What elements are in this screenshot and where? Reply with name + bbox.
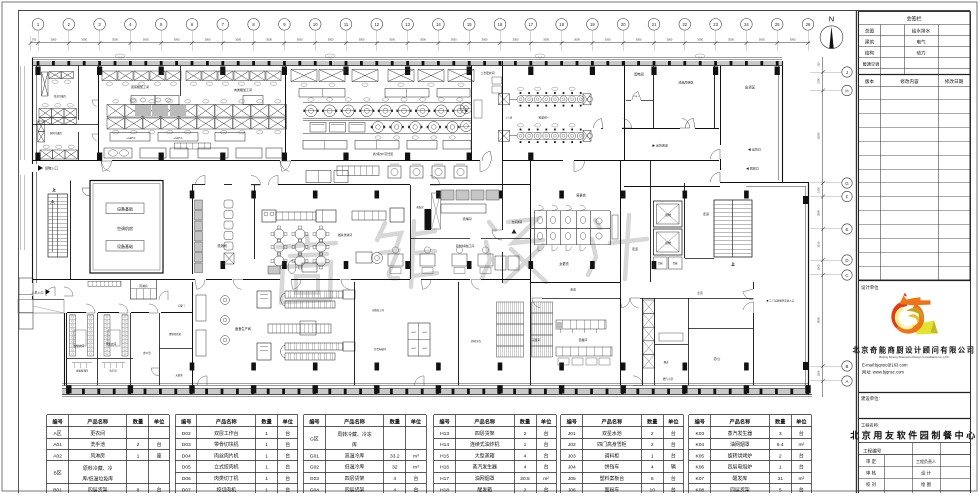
svg-text:700: 700 bbox=[32, 38, 37, 42]
svg-text:m³: m³ bbox=[413, 453, 419, 459]
svg-text:台: 台 bbox=[544, 430, 549, 437]
svg-text:更衣间: 更衣间 bbox=[90, 430, 105, 437]
svg-text:面食熟制加工间: 面食熟制加工间 bbox=[456, 244, 475, 248]
svg-text:审 定: 审 定 bbox=[866, 458, 877, 465]
svg-text:肉类切丁机: 肉类切丁机 bbox=[214, 475, 239, 482]
svg-text:8: 8 bbox=[137, 487, 140, 493]
svg-text:餐具洗消间: 餐具洗消间 bbox=[338, 233, 352, 237]
svg-text:3000: 3000 bbox=[359, 38, 365, 42]
svg-text:双星水池: 双星水池 bbox=[602, 430, 622, 437]
svg-text:26: 26 bbox=[806, 22, 811, 27]
svg-text:A02: A02 bbox=[53, 453, 62, 459]
svg-text:3000: 3000 bbox=[205, 38, 211, 42]
svg-text:10: 10 bbox=[313, 22, 318, 27]
svg-text:K03: K03 bbox=[695, 431, 704, 437]
svg-text:台: 台 bbox=[285, 464, 290, 471]
svg-text:3000: 3000 bbox=[451, 38, 457, 42]
svg-text:数量: 数量 bbox=[775, 417, 786, 425]
svg-text:24: 24 bbox=[744, 22, 749, 27]
svg-text:凉菜间: 凉菜间 bbox=[532, 338, 540, 342]
svg-text:面食生产间: 面食生产间 bbox=[235, 326, 251, 331]
svg-text:m²: m² bbox=[798, 442, 804, 448]
svg-text:3000: 3000 bbox=[174, 38, 180, 42]
svg-text:6: 6 bbox=[651, 476, 654, 482]
svg-text:2: 2 bbox=[779, 453, 782, 459]
svg-text:m³: m³ bbox=[413, 465, 419, 471]
svg-text:成品周转区: 成品周转区 bbox=[678, 80, 693, 85]
svg-text:走道: 走道 bbox=[697, 291, 703, 295]
svg-text:3000: 3000 bbox=[81, 38, 87, 42]
svg-text:北京奇能商厨设计顾问有限公司: 北京奇能商厨设计顾问有限公司 bbox=[852, 346, 975, 355]
svg-text:3000: 3000 bbox=[482, 38, 488, 42]
svg-text:单位: 单位 bbox=[541, 417, 552, 425]
svg-text:配电间: 配电间 bbox=[634, 72, 644, 77]
svg-text:空调机房: 空调机房 bbox=[117, 225, 133, 231]
svg-text:D07: D07 bbox=[182, 487, 191, 493]
svg-text:16: 16 bbox=[498, 22, 503, 27]
svg-text:G区: G区 bbox=[310, 436, 319, 442]
svg-text:Beijing Kineng Shangchu Design: Beijing Kineng Shangchu Design Consultan… bbox=[879, 355, 949, 359]
svg-text:台: 台 bbox=[671, 475, 676, 482]
svg-text:单位: 单位 bbox=[154, 417, 165, 425]
svg-text:产品名称: 产品名称 bbox=[474, 417, 496, 425]
svg-text:燃气小室: 燃气小室 bbox=[663, 377, 674, 381]
svg-text:台货电梯间: 台货电梯间 bbox=[374, 347, 387, 351]
svg-text:修改日期: 修改日期 bbox=[945, 78, 964, 85]
svg-text:3000: 3000 bbox=[728, 38, 734, 42]
svg-text:库/低温垃圾库: 库/低温垃圾库 bbox=[82, 475, 113, 482]
svg-text:单位: 单位 bbox=[411, 417, 422, 425]
svg-text:编号: 编号 bbox=[309, 417, 319, 425]
svg-text:原料冷藏、冷: 原料冷藏、冷 bbox=[83, 465, 112, 472]
svg-text:四门高身雪柜: 四门高身雪柜 bbox=[597, 441, 626, 448]
svg-text:校 对: 校 对 bbox=[866, 481, 877, 488]
svg-text:22: 22 bbox=[682, 22, 687, 27]
svg-text:低温冷库: 低温冷库 bbox=[345, 464, 365, 471]
svg-text:电气: 电气 bbox=[916, 39, 926, 45]
svg-text:会签栏: 会签栏 bbox=[906, 16, 921, 23]
svg-text:B01: B01 bbox=[53, 487, 62, 493]
svg-text:3000: 3000 bbox=[51, 38, 57, 42]
svg-text:H: H bbox=[845, 88, 848, 93]
svg-text:B区: B区 bbox=[54, 470, 62, 476]
svg-text:H17: H17 bbox=[440, 476, 449, 482]
svg-text:20.5: 20.5 bbox=[520, 476, 530, 482]
svg-text:K04: K04 bbox=[695, 442, 704, 448]
svg-text:E-mail:bjqnsc@163.com: E-mail:bjqnsc@163.com bbox=[862, 363, 908, 368]
svg-text:25: 25 bbox=[775, 22, 780, 27]
svg-text:数量: 数量 bbox=[390, 417, 401, 425]
svg-text:台: 台 bbox=[157, 441, 162, 448]
svg-text:北京用友软件园制餐中心: 北京用友软件园制餐中心 bbox=[850, 430, 978, 441]
svg-text:D: D bbox=[845, 258, 848, 263]
svg-text:烟道: 烟道 bbox=[664, 360, 669, 364]
svg-text:洗消间: 洗消间 bbox=[217, 243, 227, 248]
svg-text:旋转烘烤炉: 旋转烘烤炉 bbox=[728, 452, 753, 459]
svg-text:2: 2 bbox=[651, 442, 654, 448]
svg-text:21: 21 bbox=[652, 22, 657, 27]
svg-text:煮/炖/炒/烹饪区: 煮/炖/炒/烹饪区 bbox=[373, 151, 394, 156]
svg-text:32: 32 bbox=[392, 465, 398, 471]
svg-text:男更衣: 男更衣 bbox=[576, 193, 586, 198]
svg-text:台: 台 bbox=[285, 475, 290, 482]
svg-text:N: N bbox=[829, 15, 834, 24]
svg-text:H16: H16 bbox=[440, 465, 449, 471]
svg-text:台: 台 bbox=[413, 475, 418, 482]
svg-text:G02: G02 bbox=[310, 465, 320, 471]
svg-text:数量: 数量 bbox=[647, 417, 658, 425]
svg-text:1350: 1350 bbox=[817, 187, 821, 193]
svg-text:西餐间: 西餐间 bbox=[579, 338, 588, 342]
svg-text:J04: J04 bbox=[568, 465, 576, 471]
svg-text:台: 台 bbox=[799, 452, 804, 459]
svg-text:3000: 3000 bbox=[543, 38, 549, 42]
svg-text:辆: 辆 bbox=[671, 464, 676, 471]
svg-text:K08: K08 bbox=[695, 487, 704, 493]
svg-text:J02: J02 bbox=[568, 442, 576, 448]
svg-text:E: E bbox=[846, 227, 849, 232]
svg-text:编号: 编号 bbox=[695, 417, 705, 425]
svg-text:A区: A区 bbox=[54, 431, 62, 437]
svg-text:工程名称:: 工程名称: bbox=[861, 422, 879, 429]
svg-text:总图: 总图 bbox=[865, 28, 875, 35]
svg-text:F: F bbox=[846, 194, 849, 199]
svg-text:3000: 3000 bbox=[667, 38, 673, 42]
svg-text:走道: 走道 bbox=[632, 246, 638, 251]
svg-text:19: 19 bbox=[590, 22, 595, 27]
svg-text:m²: m² bbox=[543, 476, 549, 482]
svg-text:台: 台 bbox=[285, 430, 290, 437]
svg-text:台: 台 bbox=[544, 441, 549, 448]
svg-text:3100: 3100 bbox=[817, 241, 821, 247]
svg-text:3900: 3900 bbox=[817, 210, 821, 216]
svg-text:风淋房: 风淋房 bbox=[139, 284, 148, 288]
svg-text:醒发库: 醒发库 bbox=[733, 475, 748, 482]
svg-text:3000: 3000 bbox=[297, 38, 303, 42]
svg-text:数量: 数量 bbox=[261, 417, 272, 425]
svg-text:1: 1 bbox=[265, 453, 268, 459]
svg-text:建设单位:: 建设单位: bbox=[861, 395, 880, 402]
svg-text:给水排水: 给水排水 bbox=[912, 28, 931, 35]
svg-text:四层电焗炉: 四层电焗炉 bbox=[728, 464, 753, 471]
svg-text:产品名称: 产品名称 bbox=[730, 417, 752, 425]
svg-text:食物化验室: 食物化验室 bbox=[169, 332, 182, 336]
svg-text:◀ 二三层厨餐单元出入口: ◀ 二三层厨餐单元出入口 bbox=[766, 299, 795, 303]
svg-text:G04: G04 bbox=[310, 487, 320, 493]
svg-text:9.4: 9.4 bbox=[777, 442, 784, 448]
svg-text:D03: D03 bbox=[182, 442, 191, 448]
svg-text:人员入口: 人员入口 bbox=[32, 291, 44, 295]
svg-text:1: 1 bbox=[265, 442, 268, 448]
svg-text:绘 图: 绘 图 bbox=[921, 481, 932, 488]
svg-text:风淋房: 风淋房 bbox=[90, 452, 105, 459]
svg-text:H15: H15 bbox=[440, 453, 449, 459]
svg-text:▶ 出货通道: ▶ 出货通道 bbox=[652, 143, 668, 148]
svg-text:H18: H18 bbox=[440, 487, 449, 493]
svg-text:1: 1 bbox=[265, 476, 268, 482]
svg-text:连续式油炸机: 连续式油炸机 bbox=[470, 441, 499, 448]
svg-text:洗手池: 洗手池 bbox=[90, 441, 105, 448]
svg-text:2: 2 bbox=[137, 442, 140, 448]
svg-text:◀ 回收口: ◀ 回收口 bbox=[746, 166, 759, 171]
svg-text:工程编号: 工程编号 bbox=[863, 448, 882, 455]
svg-text:四层货架: 四层货架 bbox=[345, 475, 365, 482]
svg-text:周转冷藏、冷冻: 周转冷藏、冷冻 bbox=[337, 431, 371, 438]
svg-text:蒸汽发生器: 蒸汽发生器 bbox=[472, 464, 497, 471]
svg-text:20: 20 bbox=[621, 22, 626, 27]
svg-text:12: 12 bbox=[374, 22, 379, 27]
svg-text:D06: D06 bbox=[182, 476, 191, 482]
svg-text:工程负责人: 工程负责人 bbox=[916, 458, 936, 464]
svg-text:9000: 9000 bbox=[817, 317, 821, 323]
svg-text:蒸汽发生器: 蒸汽发生器 bbox=[728, 430, 753, 437]
svg-text:J06: J06 bbox=[568, 487, 576, 493]
svg-text:版本: 版本 bbox=[865, 78, 875, 85]
svg-text:办公: 办公 bbox=[714, 356, 721, 361]
svg-text:办公室: 办公室 bbox=[143, 351, 151, 355]
svg-text:A01: A01 bbox=[53, 442, 62, 448]
svg-text:K05: K05 bbox=[695, 453, 704, 459]
svg-text:饼铛车: 饼铛车 bbox=[605, 464, 620, 471]
svg-text:3000: 3000 bbox=[759, 38, 765, 42]
svg-text:大型蒸箱: 大型蒸箱 bbox=[475, 452, 495, 459]
svg-text:3000: 3000 bbox=[143, 38, 149, 42]
svg-text:10: 10 bbox=[649, 487, 655, 493]
svg-text:4: 4 bbox=[393, 487, 396, 493]
svg-text:1: 1 bbox=[265, 431, 268, 437]
svg-text:2: 2 bbox=[524, 487, 527, 493]
svg-text:3000: 3000 bbox=[266, 38, 272, 42]
svg-text:女更衣: 女更衣 bbox=[559, 261, 569, 266]
svg-text:1: 1 bbox=[265, 465, 268, 471]
svg-text:m³: m³ bbox=[798, 476, 804, 482]
svg-text:双层工作台: 双层工作台 bbox=[214, 430, 239, 437]
svg-text:G01: G01 bbox=[310, 453, 320, 459]
svg-text:1: 1 bbox=[265, 487, 268, 493]
svg-text:产品名称: 产品名称 bbox=[87, 417, 109, 425]
svg-text:D05: D05 bbox=[182, 465, 191, 471]
svg-text:座: 座 bbox=[157, 452, 162, 459]
svg-text:货梯: 货梯 bbox=[665, 240, 671, 245]
svg-text:台: 台 bbox=[671, 452, 676, 459]
svg-text:750: 750 bbox=[817, 62, 821, 67]
svg-text:台: 台 bbox=[799, 464, 804, 471]
svg-text:货梯: 货梯 bbox=[665, 212, 671, 217]
svg-text:1: 1 bbox=[651, 453, 654, 459]
svg-text:二次更衣间: 二次更衣间 bbox=[481, 71, 495, 75]
svg-text:2: 2 bbox=[524, 431, 527, 437]
svg-text:调料柜: 调料柜 bbox=[605, 452, 620, 459]
svg-text:编号: 编号 bbox=[439, 417, 449, 425]
svg-text:肉丝肉片机: 肉丝肉片机 bbox=[214, 452, 239, 459]
svg-text:4: 4 bbox=[524, 453, 527, 459]
svg-text:台: 台 bbox=[544, 452, 549, 459]
svg-text:33.2: 33.2 bbox=[390, 453, 400, 459]
svg-text:K07: K07 bbox=[695, 476, 704, 482]
svg-text:2: 2 bbox=[651, 431, 654, 437]
svg-text:3000: 3000 bbox=[574, 38, 580, 42]
svg-text:J03: J03 bbox=[568, 453, 576, 459]
svg-text:K06: K06 bbox=[695, 465, 704, 471]
svg-text:17: 17 bbox=[528, 22, 533, 27]
svg-text:5: 5 bbox=[779, 487, 782, 493]
svg-text:设备基础: 设备基础 bbox=[117, 206, 133, 212]
svg-text:14: 14 bbox=[436, 22, 441, 27]
svg-text:暖通空调: 暖通空调 bbox=[863, 61, 880, 68]
svg-text:修改内容: 修改内容 bbox=[900, 78, 919, 85]
svg-text:单位: 单位 bbox=[668, 417, 679, 425]
svg-text:4: 4 bbox=[651, 465, 654, 471]
svg-text:1: 1 bbox=[524, 442, 527, 448]
svg-text:产品名称: 产品名称 bbox=[344, 417, 366, 425]
svg-text:设计单位: 设计单位 bbox=[861, 284, 879, 291]
svg-text:4: 4 bbox=[524, 465, 527, 471]
svg-text:包装间一: 包装间一 bbox=[538, 116, 549, 120]
svg-text:3000: 3000 bbox=[636, 38, 642, 42]
svg-text:单位: 单位 bbox=[283, 417, 294, 425]
svg-text:四层货架: 四层货架 bbox=[475, 430, 495, 437]
svg-text:10200: 10200 bbox=[817, 132, 821, 140]
svg-text:走道: 走道 bbox=[703, 211, 709, 216]
svg-text:编号: 编号 bbox=[567, 417, 577, 425]
svg-text:15: 15 bbox=[467, 22, 472, 27]
svg-text:低温冷藏库: 低温冷藏库 bbox=[54, 94, 67, 98]
svg-text:肉类粗加工间: 肉类粗加工间 bbox=[234, 87, 252, 92]
svg-text:库: 库 bbox=[352, 441, 357, 448]
svg-text:油网烟罩: 油网烟罩 bbox=[730, 441, 750, 448]
svg-text:3000: 3000 bbox=[790, 38, 796, 42]
svg-text:2100: 2100 bbox=[817, 78, 821, 84]
svg-text:走道: 走道 bbox=[570, 288, 576, 292]
svg-text:数量: 数量 bbox=[133, 417, 144, 425]
svg-text:烧烤间: 烧烤间 bbox=[462, 216, 471, 221]
svg-text:A: A bbox=[846, 379, 849, 384]
svg-text:D04: D04 bbox=[182, 453, 191, 459]
svg-text:3000: 3000 bbox=[697, 38, 703, 42]
svg-text:台: 台 bbox=[671, 441, 676, 448]
svg-text:31: 31 bbox=[777, 476, 783, 482]
svg-text:3000: 3000 bbox=[389, 38, 395, 42]
svg-text:编号: 编号 bbox=[181, 417, 191, 425]
svg-text:油网烟罩: 油网烟罩 bbox=[475, 475, 495, 482]
svg-text:高温冷库: 高温冷库 bbox=[345, 452, 365, 459]
svg-text:产品名称: 产品名称 bbox=[602, 417, 624, 425]
svg-text:塑料案板台: 塑料案板台 bbox=[600, 475, 625, 482]
svg-text:货梯: 货梯 bbox=[673, 261, 678, 265]
svg-text:23: 23 bbox=[713, 22, 718, 27]
svg-text:台: 台 bbox=[799, 430, 804, 437]
svg-text:立式绞肉机: 立式绞肉机 bbox=[214, 464, 239, 471]
svg-text:带骨切块机: 带骨切块机 bbox=[214, 441, 239, 448]
svg-text:台: 台 bbox=[285, 452, 290, 459]
svg-text:J01: J01 bbox=[568, 431, 576, 437]
svg-text:杂粮加工间: 杂粮加工间 bbox=[372, 308, 385, 312]
svg-text:审 核: 审 核 bbox=[866, 470, 877, 477]
svg-text:出货区: 出货区 bbox=[745, 85, 756, 90]
svg-text:蒸饭房: 蒸饭房 bbox=[416, 205, 424, 209]
svg-text:蔬菜粗加工间: 蔬菜粗加工间 bbox=[131, 84, 149, 89]
svg-text:D02: D02 bbox=[182, 431, 191, 437]
svg-text:1500: 1500 bbox=[817, 370, 821, 376]
svg-text:3000: 3000 bbox=[235, 38, 241, 42]
svg-text:11: 11 bbox=[344, 22, 349, 27]
svg-text:3000: 3000 bbox=[513, 38, 519, 42]
svg-text:产品名称: 产品名称 bbox=[216, 417, 238, 425]
svg-text:货物入口: 货物入口 bbox=[45, 166, 58, 171]
svg-text:B: B bbox=[846, 364, 849, 369]
svg-text:台: 台 bbox=[544, 464, 549, 471]
svg-text:G03: G03 bbox=[310, 476, 320, 482]
svg-text:G: G bbox=[845, 181, 849, 186]
svg-text:H14: H14 bbox=[440, 442, 449, 448]
svg-text:1: 1 bbox=[137, 453, 140, 459]
svg-text:设备基础: 设备基础 bbox=[117, 243, 133, 249]
svg-text:H13: H13 bbox=[440, 431, 449, 437]
svg-text:编号: 编号 bbox=[52, 417, 62, 425]
svg-text:原料冷藏库: 原料冷藏库 bbox=[50, 131, 63, 135]
svg-text:18: 18 bbox=[559, 22, 564, 27]
svg-text:4: 4 bbox=[393, 476, 396, 482]
svg-text:3000: 3000 bbox=[328, 38, 334, 42]
svg-text:单位: 单位 bbox=[796, 417, 807, 425]
svg-text:13: 13 bbox=[405, 22, 410, 27]
svg-text:1500: 1500 bbox=[817, 264, 821, 270]
svg-text:无菌室: 无菌室 bbox=[175, 373, 183, 377]
svg-text:3000: 3000 bbox=[112, 38, 118, 42]
svg-text:动力: 动力 bbox=[916, 50, 926, 57]
svg-text:网址: www.bjqnsc.com: 网址: www.bjqnsc.com bbox=[862, 369, 904, 376]
svg-text:金属探测间: 金属探测间 bbox=[76, 369, 89, 373]
svg-text:数量: 数量 bbox=[520, 417, 531, 425]
svg-text:台: 台 bbox=[285, 441, 290, 448]
svg-text:1: 1 bbox=[779, 465, 782, 471]
svg-text:周转冷库: 周转冷库 bbox=[471, 339, 482, 343]
svg-text:合梯: 合梯 bbox=[658, 261, 663, 265]
svg-text:C: C bbox=[845, 273, 848, 278]
svg-text:设 计: 设 计 bbox=[921, 470, 932, 477]
svg-text:3: 3 bbox=[779, 431, 782, 437]
svg-text:3000: 3000 bbox=[605, 38, 611, 42]
svg-text:J: J bbox=[846, 70, 848, 75]
svg-text:结构: 结构 bbox=[865, 50, 875, 57]
svg-text:台: 台 bbox=[671, 430, 676, 437]
svg-text:洗手间: 洗手间 bbox=[109, 369, 117, 373]
svg-text:◀ 出货口: ◀ 出货口 bbox=[748, 147, 761, 152]
svg-text:J05: J05 bbox=[568, 476, 576, 482]
svg-text:3000: 3000 bbox=[420, 38, 426, 42]
svg-text:建筑: 建筑 bbox=[865, 39, 875, 46]
svg-text:台货通道: 台货通道 bbox=[512, 220, 523, 224]
